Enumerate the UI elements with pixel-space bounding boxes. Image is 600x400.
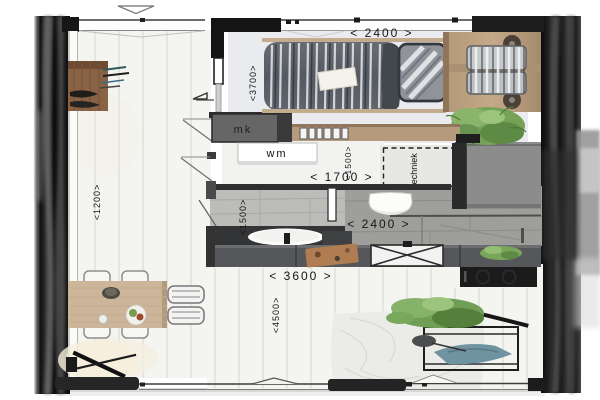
svg-text:techniek: techniek (409, 153, 419, 187)
svg-text:< 3600 >: < 3600 > (269, 269, 332, 283)
svg-text:< 2400 >: < 2400 > (347, 217, 410, 231)
svg-text:wm: wm (265, 148, 287, 160)
svg-text:< 2400 >: < 2400 > (350, 26, 413, 40)
svg-text:mk: mk (234, 124, 253, 136)
svg-text:<3700>: <3700> (248, 65, 258, 102)
svg-text:<1200>: <1200> (92, 184, 102, 221)
svg-text:<4500>: <4500> (271, 297, 281, 334)
svg-text:< 1700 >: < 1700 > (310, 170, 373, 184)
svg-text:<1500>: <1500> (238, 199, 248, 236)
